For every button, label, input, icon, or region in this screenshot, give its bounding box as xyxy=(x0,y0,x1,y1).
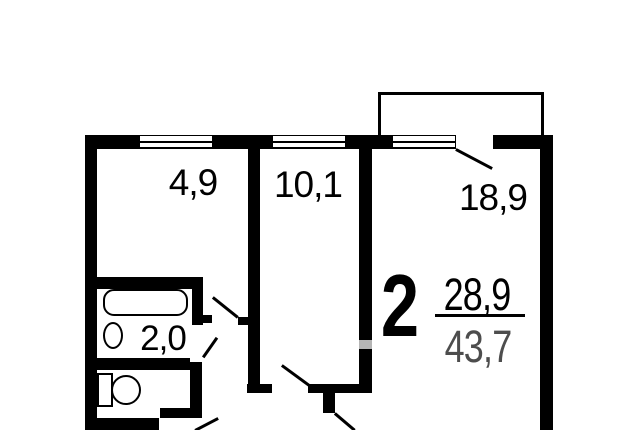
wc-door-swing-line xyxy=(194,417,218,430)
total-area-value: 43,7 xyxy=(438,324,518,369)
floor-plan: 4,9 10,1 18,9 2,0 2 28,9 43,7 xyxy=(0,0,640,430)
area-fraction-divider xyxy=(435,314,525,317)
room-area-label-bathroom: 2,0 xyxy=(113,319,213,359)
wall-wc-right-foot xyxy=(160,408,202,418)
window-bedroom xyxy=(273,136,345,147)
wall-left xyxy=(85,135,97,430)
hall-door-swing-line xyxy=(281,364,312,388)
room-area-label-kitchen: 4,9 xyxy=(143,162,243,205)
window-glazing-line xyxy=(140,141,212,143)
living-area-value: 28,9 xyxy=(437,272,517,317)
apartment-room-count: 2 xyxy=(361,262,439,350)
window-glazing-line xyxy=(273,141,345,143)
balcony xyxy=(378,92,544,138)
balcony-door-opening xyxy=(456,135,493,149)
wall-wc-right xyxy=(190,362,202,408)
window-living-room xyxy=(393,136,455,147)
window-glazing-line xyxy=(393,141,455,143)
kitchen-door-swing-line xyxy=(212,296,239,318)
bathtub xyxy=(103,289,188,316)
wall-hall-bottom-left xyxy=(247,384,272,393)
toilet-bowl xyxy=(111,375,141,405)
window-kitchen xyxy=(140,136,212,147)
wall-hall-bottom-right xyxy=(308,384,372,393)
wall-wc-bottom xyxy=(85,418,159,430)
room-area-label-bedroom: 10,1 xyxy=(258,164,358,207)
kitchen-door-stub xyxy=(238,317,248,325)
wall-bathroom-bottom xyxy=(85,358,190,370)
wall-bathroom-top xyxy=(97,277,203,289)
room-area-label-living-room: 18,9 xyxy=(443,177,543,220)
entry-corridor-wall-stub xyxy=(323,393,335,413)
balcony-door-swing-line xyxy=(455,148,492,169)
entry-door-swing-line xyxy=(334,412,355,430)
